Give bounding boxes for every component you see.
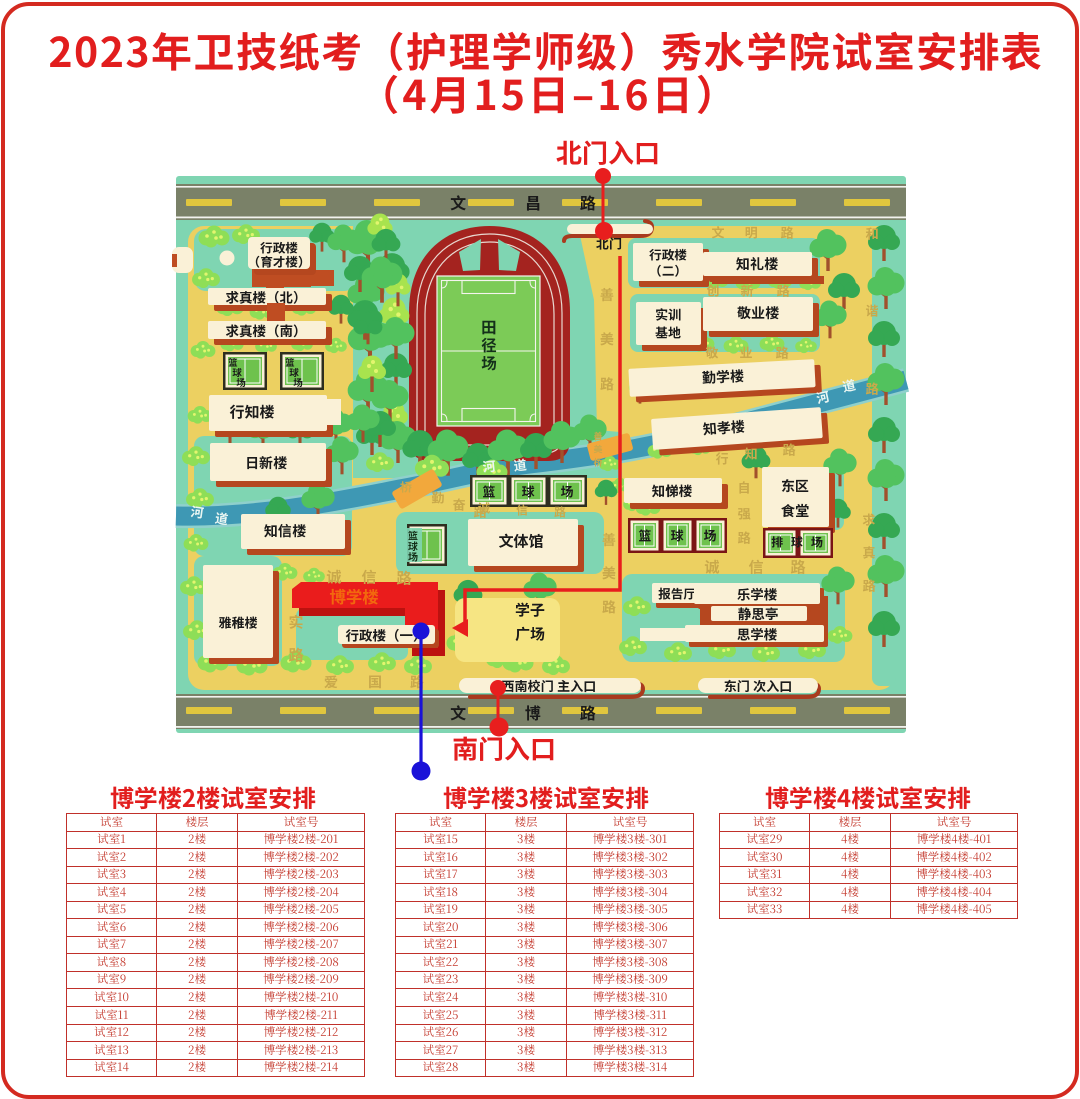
svg-text:知: 知: [744, 444, 757, 463]
svg-text:东门 次入口: 东门 次入口: [724, 676, 793, 695]
svg-text:信: 信: [748, 557, 763, 578]
svg-text:路: 路: [554, 504, 566, 521]
svg-text:知礼楼: 知礼楼: [736, 254, 778, 274]
svg-text:东区: 东区: [781, 476, 809, 496]
svg-text:日新楼: 日新楼: [245, 453, 287, 473]
svg-text:业: 业: [739, 343, 752, 362]
svg-text:行知楼: 行知楼: [229, 402, 274, 423]
svg-text:河: 河: [190, 501, 206, 522]
svg-text:实训: 实训: [655, 305, 681, 324]
svg-text:善: 善: [600, 285, 614, 305]
svg-text:善: 善: [593, 430, 602, 443]
svg-text:明: 明: [744, 223, 757, 242]
svg-text:信: 信: [516, 502, 528, 519]
svg-text:勤学楼: 勤学楼: [701, 366, 744, 388]
svg-text:路: 路: [865, 379, 878, 398]
svg-text:行: 行: [715, 449, 728, 468]
svg-text:路: 路: [396, 568, 411, 589]
svg-text:河: 河: [482, 456, 497, 476]
svg-text:雅稚楼: 雅稚楼: [218, 613, 257, 632]
svg-text:场: 场: [560, 482, 573, 501]
svg-text:场: 场: [292, 375, 303, 389]
svg-text:球: 球: [670, 526, 683, 545]
svg-text:路: 路: [602, 597, 616, 617]
svg-text:道: 道: [214, 508, 230, 529]
svg-text:报告厅: 报告厅: [658, 584, 696, 603]
svg-text:场: 场: [235, 375, 246, 389]
svg-text:勤: 勤: [431, 488, 444, 507]
svg-text:场: 场: [408, 549, 418, 564]
svg-text:敬业楼: 敬业楼: [737, 303, 779, 323]
svg-text:知孝楼: 知孝楼: [702, 416, 745, 439]
svg-text:（育才楼）: （育才楼）: [248, 252, 311, 271]
svg-text:静思亭: 静思亭: [738, 603, 779, 623]
svg-text:西南校门 主入口: 西南校门 主入口: [502, 676, 597, 695]
svg-text:篮: 篮: [482, 482, 495, 501]
svg-text:场: 场: [811, 534, 823, 551]
svg-text:路: 路: [776, 281, 789, 300]
svg-text:善: 善: [602, 530, 616, 550]
svg-text:乐学楼: 乐学楼: [737, 584, 778, 604]
svg-text:文体馆: 文体馆: [498, 531, 543, 552]
svg-text:新: 新: [740, 281, 753, 300]
svg-text:学子: 学子: [515, 600, 545, 621]
svg-text:博: 博: [525, 700, 541, 724]
svg-text:自: 自: [737, 478, 750, 497]
svg-text:美: 美: [593, 443, 602, 456]
svg-text:思学楼: 思学楼: [737, 624, 778, 644]
svg-text:路: 路: [580, 700, 597, 724]
svg-text:博学楼: 博学楼: [329, 584, 379, 608]
svg-text:场: 场: [703, 526, 716, 545]
svg-text:球: 球: [521, 482, 534, 501]
svg-text:道: 道: [513, 454, 528, 474]
svg-text:创: 创: [705, 281, 719, 300]
svg-text:求: 求: [862, 510, 875, 529]
svg-text:文: 文: [450, 190, 466, 214]
svg-text:路: 路: [862, 576, 875, 595]
svg-text:排: 排: [771, 534, 783, 551]
svg-text:爱: 爱: [324, 672, 338, 692]
svg-text:路: 路: [600, 374, 614, 394]
svg-text:（二）: （二）: [649, 261, 687, 280]
svg-text:信: 信: [361, 567, 376, 588]
svg-text:真: 真: [862, 543, 875, 562]
svg-text:桥: 桥: [593, 456, 603, 469]
svg-text:和: 和: [865, 224, 878, 243]
svg-text:实: 实: [288, 612, 303, 633]
svg-text:求真楼（南）: 求真楼（南）: [226, 320, 307, 340]
svg-text:食堂: 食堂: [780, 501, 809, 521]
svg-text:文: 文: [450, 700, 466, 724]
svg-text:北门入口: 北门入口: [556, 134, 660, 171]
svg-text:美: 美: [602, 563, 616, 583]
svg-text:桥: 桥: [400, 479, 412, 496]
svg-text:路: 路: [780, 223, 793, 242]
svg-text:路: 路: [782, 440, 795, 459]
svg-text:昌: 昌: [525, 190, 541, 214]
svg-text:谐: 谐: [865, 301, 878, 320]
svg-text:广场: 广场: [515, 624, 545, 645]
svg-text:美: 美: [600, 329, 614, 349]
svg-text:路: 路: [775, 343, 788, 362]
svg-text:路: 路: [288, 645, 303, 666]
svg-text:基地: 基地: [655, 323, 681, 342]
svg-text:知悌楼: 知悌楼: [652, 480, 693, 500]
svg-text:强: 强: [737, 504, 750, 523]
svg-text:诚: 诚: [478, 500, 490, 517]
svg-text:国: 国: [368, 672, 382, 692]
svg-text:南门入口: 南门入口: [452, 730, 556, 767]
svg-text:求真楼（北）: 求真楼（北）: [226, 287, 307, 307]
svg-text:场: 场: [481, 352, 497, 374]
svg-text:诚: 诚: [704, 557, 719, 578]
svg-text:路: 路: [737, 528, 750, 547]
svg-text:篮: 篮: [638, 526, 651, 545]
svg-text:路: 路: [790, 557, 805, 578]
svg-text:知信楼: 知信楼: [264, 521, 306, 541]
svg-text:球: 球: [791, 534, 803, 551]
svg-text:路: 路: [580, 190, 597, 214]
svg-text:诚: 诚: [326, 567, 341, 588]
svg-text:奋: 奋: [452, 495, 465, 514]
svg-text:文: 文: [711, 223, 725, 242]
svg-text:敬: 敬: [705, 343, 719, 362]
